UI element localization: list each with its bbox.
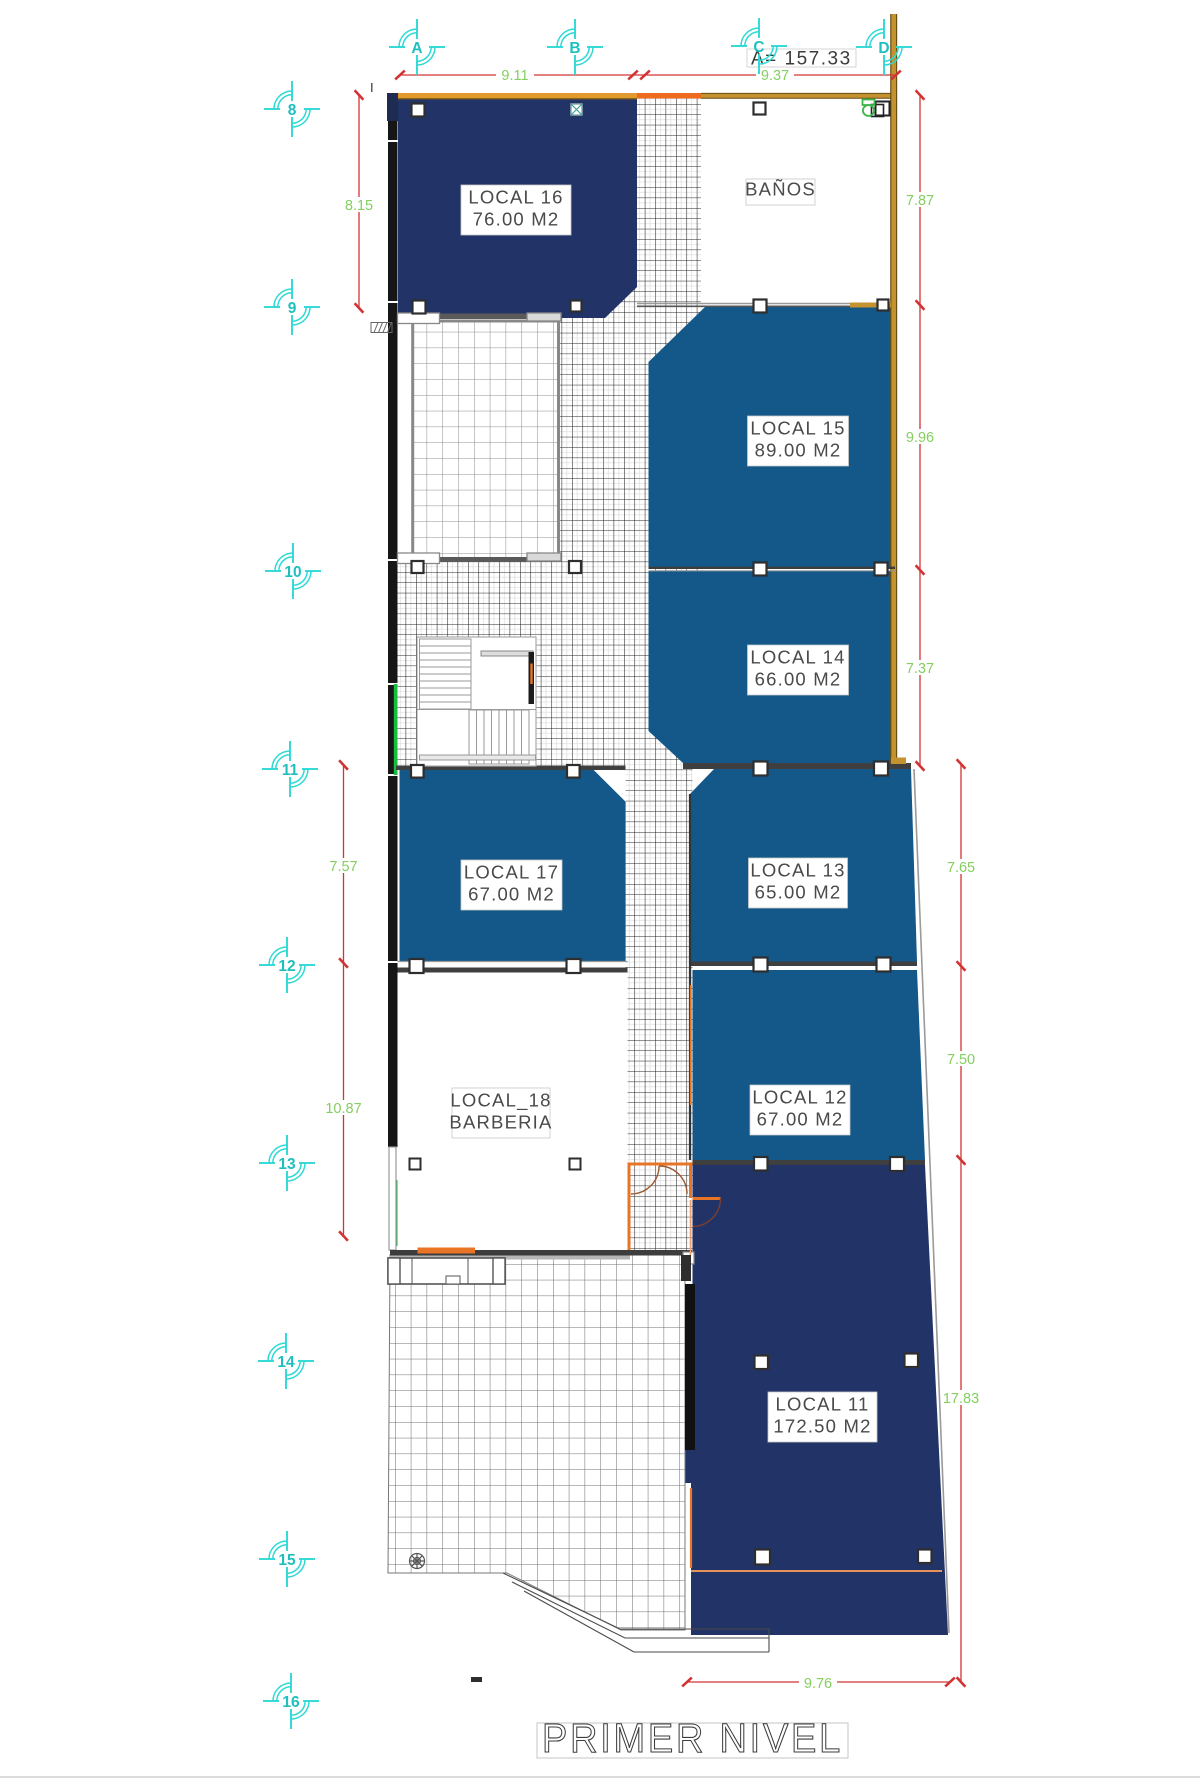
svg-text:8.15: 8.15 bbox=[345, 198, 373, 214]
svg-text:BARBERIA: BARBERIA bbox=[449, 1112, 552, 1133]
svg-text:B: B bbox=[569, 40, 580, 57]
svg-text:7.57: 7.57 bbox=[329, 859, 357, 875]
svg-text:A: A bbox=[411, 40, 422, 57]
svg-text:7.37: 7.37 bbox=[906, 661, 934, 677]
svg-text:9.37: 9.37 bbox=[761, 68, 789, 84]
svg-text:LOCAL 16: LOCAL 16 bbox=[468, 187, 563, 208]
svg-text:PRIMER NIVEL: PRIMER NIVEL bbox=[542, 1715, 843, 1761]
svg-text:BAÑOS: BAÑOS bbox=[745, 179, 816, 200]
svg-text:7.50: 7.50 bbox=[947, 1052, 975, 1068]
svg-text:D: D bbox=[878, 40, 889, 57]
svg-text:9.76: 9.76 bbox=[804, 1676, 832, 1692]
svg-text:66.00 M2: 66.00 M2 bbox=[755, 669, 842, 690]
svg-text:C: C bbox=[753, 39, 764, 56]
svg-text:10.87: 10.87 bbox=[325, 1101, 361, 1117]
svg-text:LOCAL 17: LOCAL 17 bbox=[464, 862, 559, 883]
svg-text:89.00 M2: 89.00 M2 bbox=[755, 440, 842, 461]
svg-text:10: 10 bbox=[284, 564, 301, 581]
svg-text:65.00 M2: 65.00 M2 bbox=[755, 882, 842, 903]
svg-text:8: 8 bbox=[288, 102, 297, 119]
svg-text:12: 12 bbox=[278, 958, 295, 975]
svg-text:17.83: 17.83 bbox=[943, 1391, 979, 1407]
svg-text:I: I bbox=[370, 80, 374, 95]
svg-text:15: 15 bbox=[278, 1552, 296, 1569]
svg-text:7.65: 7.65 bbox=[947, 860, 975, 876]
svg-text:13: 13 bbox=[278, 1156, 296, 1173]
svg-text:9: 9 bbox=[288, 300, 297, 317]
svg-text:16: 16 bbox=[282, 1694, 300, 1711]
svg-text:LOCAL 13: LOCAL 13 bbox=[750, 860, 845, 881]
svg-text:76.00 M2: 76.00 M2 bbox=[473, 209, 560, 230]
svg-text:9.11: 9.11 bbox=[501, 68, 528, 84]
svg-text:67.00 M2: 67.00 M2 bbox=[468, 884, 555, 905]
svg-text:9.96: 9.96 bbox=[906, 430, 934, 446]
svg-text:67.00 M2: 67.00 M2 bbox=[757, 1109, 844, 1130]
svg-text:LOCAL 11: LOCAL 11 bbox=[776, 1394, 870, 1415]
svg-text:LOCAL 14: LOCAL 14 bbox=[750, 647, 845, 668]
svg-text:11: 11 bbox=[282, 762, 299, 779]
svg-text:172.50 M2: 172.50 M2 bbox=[773, 1416, 871, 1437]
svg-text:LOCAL 15: LOCAL 15 bbox=[750, 418, 845, 439]
svg-text:LOCAL_18: LOCAL_18 bbox=[450, 1090, 551, 1112]
svg-text:14: 14 bbox=[277, 1354, 295, 1371]
svg-text:LOCAL 12: LOCAL 12 bbox=[752, 1087, 847, 1108]
svg-text:7.87: 7.87 bbox=[906, 193, 934, 209]
